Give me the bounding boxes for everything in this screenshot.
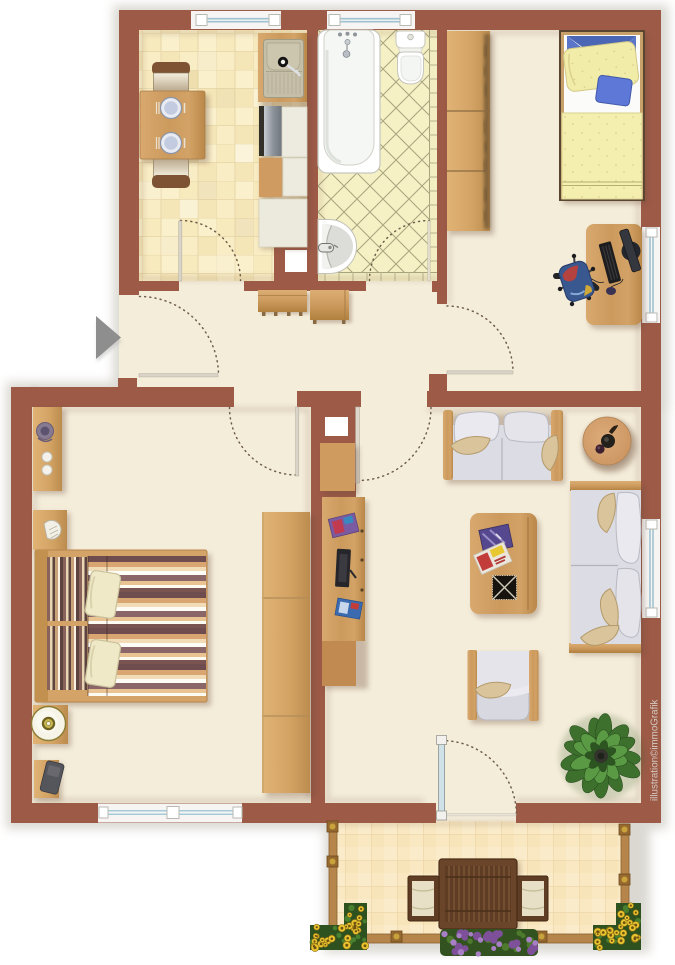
svg-text:illustration©immoGrafik: illustration©immoGrafik [650, 699, 661, 801]
